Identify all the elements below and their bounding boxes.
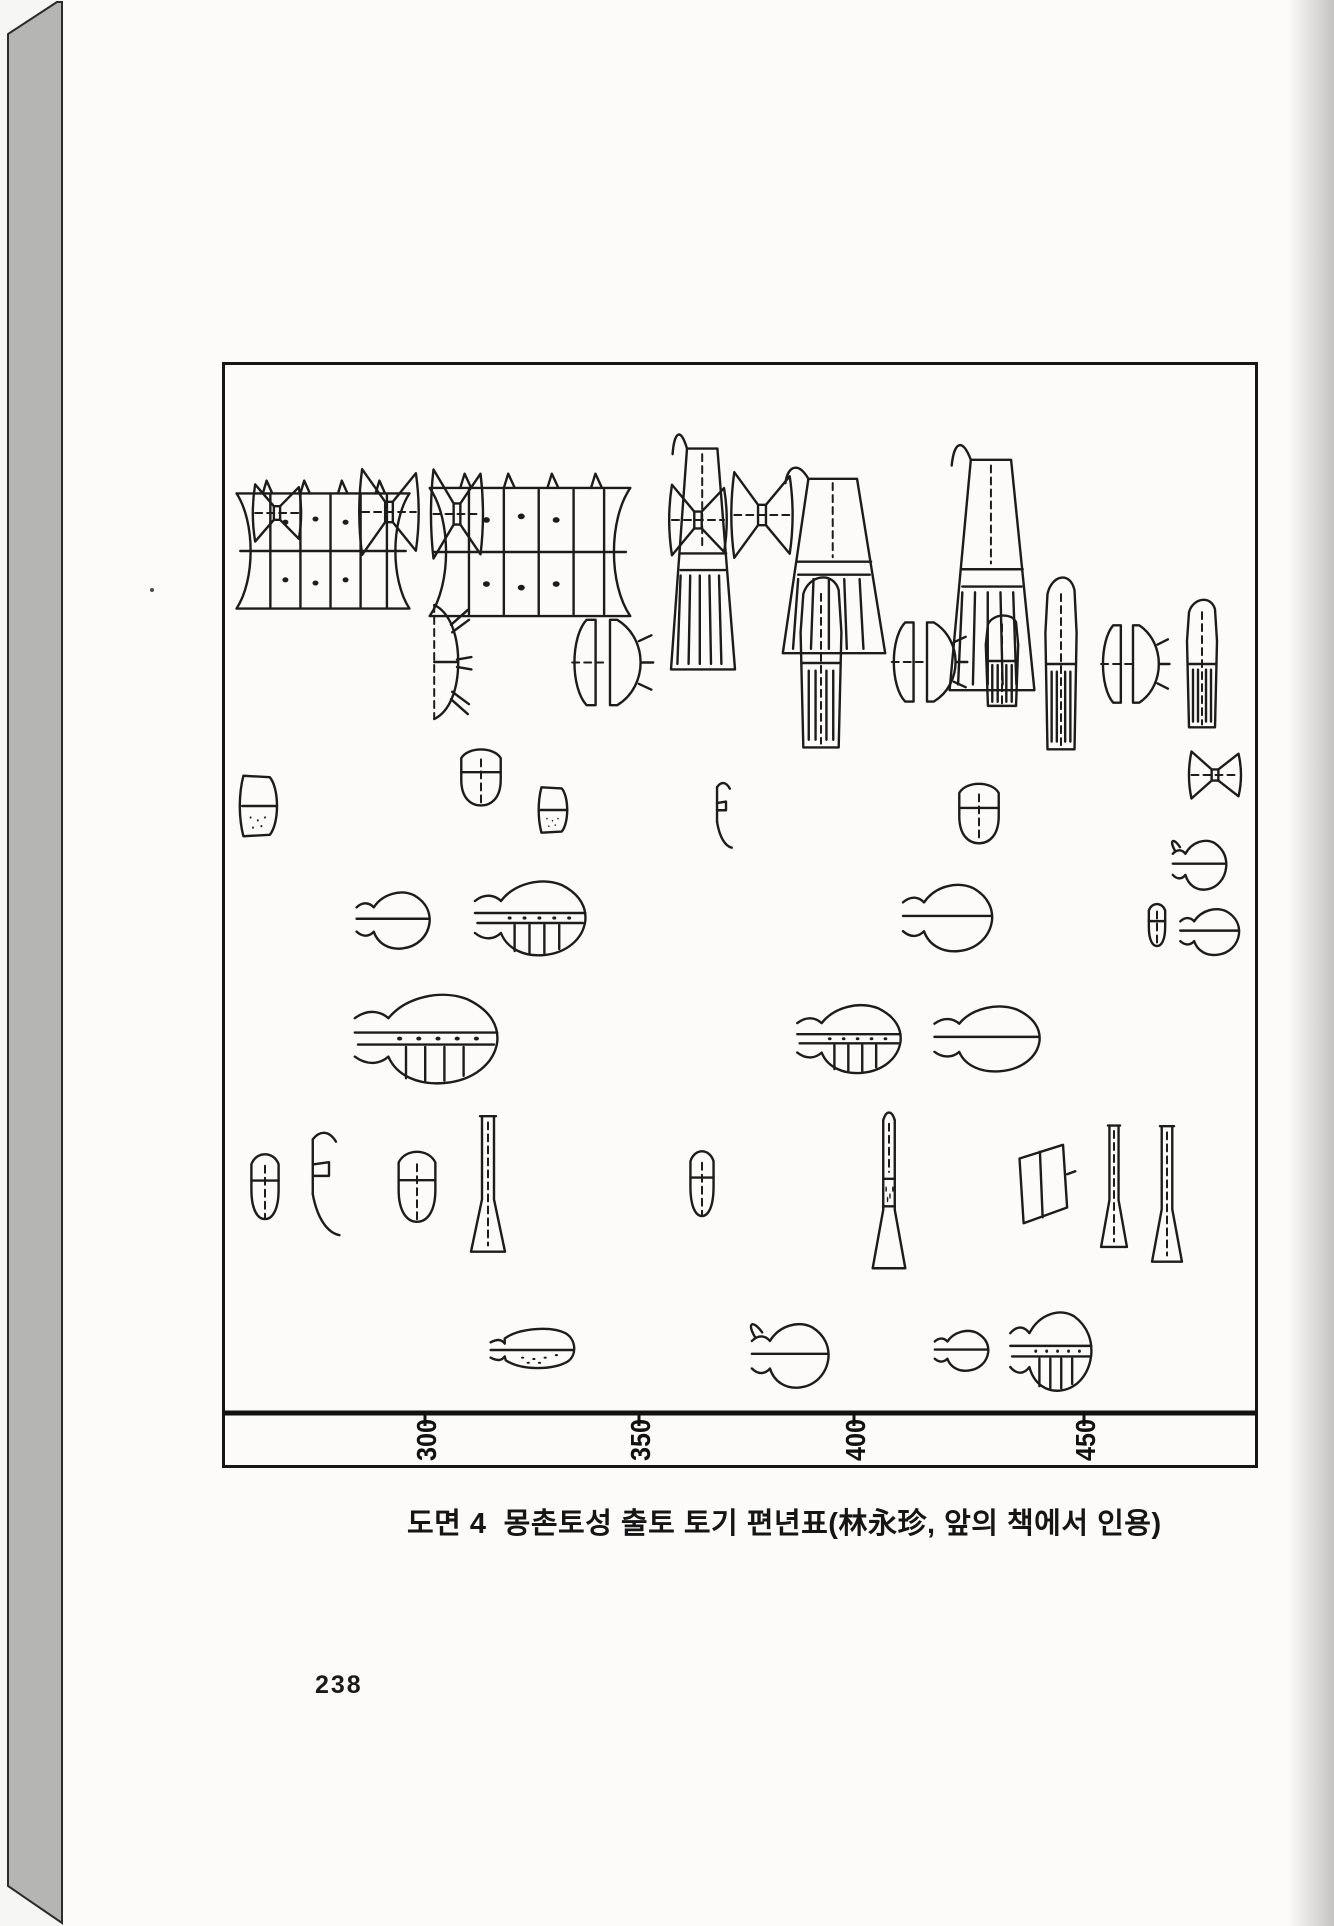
pottery-item-dish-half-pair xyxy=(1101,625,1169,702)
pottery-item-jar-hatched xyxy=(1010,1313,1091,1391)
pottery-item-deep-cyl xyxy=(801,577,842,747)
pottery-item-jar-neck xyxy=(934,1007,1039,1072)
pottery-item-pedestal-hatch xyxy=(873,1113,906,1269)
axis-tick-label: 300 xyxy=(411,1419,442,1461)
axis-tick-label: 350 xyxy=(625,1419,656,1461)
pottery-item-lid-hook xyxy=(717,783,732,848)
pottery-item-dish-struts xyxy=(434,605,471,719)
pottery-item-pedestal-flare xyxy=(1101,1126,1127,1247)
pottery-item-stand-cone xyxy=(783,468,885,654)
pottery-item-bowl-hatch xyxy=(240,776,277,836)
timeline-axis: 300350400450 xyxy=(225,1413,1255,1461)
figure-box: 300350400450 xyxy=(222,362,1258,1468)
pottery-item-jar-handle xyxy=(751,1324,829,1387)
pottery-item-goblet-bow xyxy=(731,472,792,558)
pottery-item-bowl-cup xyxy=(690,1151,713,1216)
pottery-item-jar-neck xyxy=(1180,909,1239,955)
pottery-item-deep-cyl xyxy=(1045,578,1076,750)
scan-speck xyxy=(150,588,154,592)
pottery-item-bowl-cup xyxy=(251,1154,278,1219)
pottery-item-bowl-cup xyxy=(1149,904,1165,946)
figure-caption: 도면 4 몽촌토성 출토 토기 편년표(林永珍, 앞의 책에서 인용) xyxy=(407,1500,1162,1542)
pottery-item-bowl-cup xyxy=(959,784,998,844)
pottery-item-goblet-bow xyxy=(1189,751,1241,798)
pottery-item-bowl-cup xyxy=(461,749,500,805)
pottery-item-stand-cone xyxy=(950,445,1035,690)
pottery-item-dish-half-pair xyxy=(572,620,653,705)
pottery-item-jar-hatched xyxy=(475,882,586,956)
pottery-item-goblet-bow xyxy=(359,469,419,555)
pottery-item-deep-cyl xyxy=(1187,600,1217,728)
pottery-item-jar-handle xyxy=(1172,841,1226,890)
pottery-item-bowl-hatch xyxy=(539,787,568,832)
pottery-item-lid-hook xyxy=(313,1133,340,1235)
pottery-item-jar-hatched xyxy=(355,995,498,1084)
pottery-item-stand-cone xyxy=(671,435,735,670)
book-edge xyxy=(0,0,70,1926)
pottery-item-stand-long xyxy=(430,474,631,616)
pottery-item-jar-hatched xyxy=(797,1005,900,1073)
pottery-item-pedestal-flare xyxy=(1152,1126,1182,1262)
pottery-item-goblet-bow xyxy=(431,469,483,558)
pottery-item-pedestal-flare xyxy=(471,1116,505,1252)
pottery-chronology-figure: 300350400450 xyxy=(225,365,1255,1465)
pottery-item-flask-side xyxy=(491,1329,575,1368)
pottery-item-dish-trap xyxy=(1020,1145,1076,1223)
pottery-item-goblet-bow xyxy=(669,485,727,556)
book-page-scan: 300350400450 도면 4 몽촌토성 출토 토기 편년표(林永珍, 앞의… xyxy=(0,0,1334,1926)
page-number: 238 xyxy=(315,1671,363,1700)
pottery-item-jar-neck xyxy=(357,893,430,949)
pottery-item-bowl-cup xyxy=(399,1152,436,1222)
axis-tick-label: 450 xyxy=(1070,1419,1101,1461)
pottery-item-jar-neck xyxy=(903,885,992,951)
page-edge-shadow xyxy=(1288,0,1334,1926)
pottery-item-jar-neck xyxy=(935,1331,988,1371)
pottery-items-layer xyxy=(237,435,1242,1391)
axis-tick-label: 400 xyxy=(840,1419,871,1461)
